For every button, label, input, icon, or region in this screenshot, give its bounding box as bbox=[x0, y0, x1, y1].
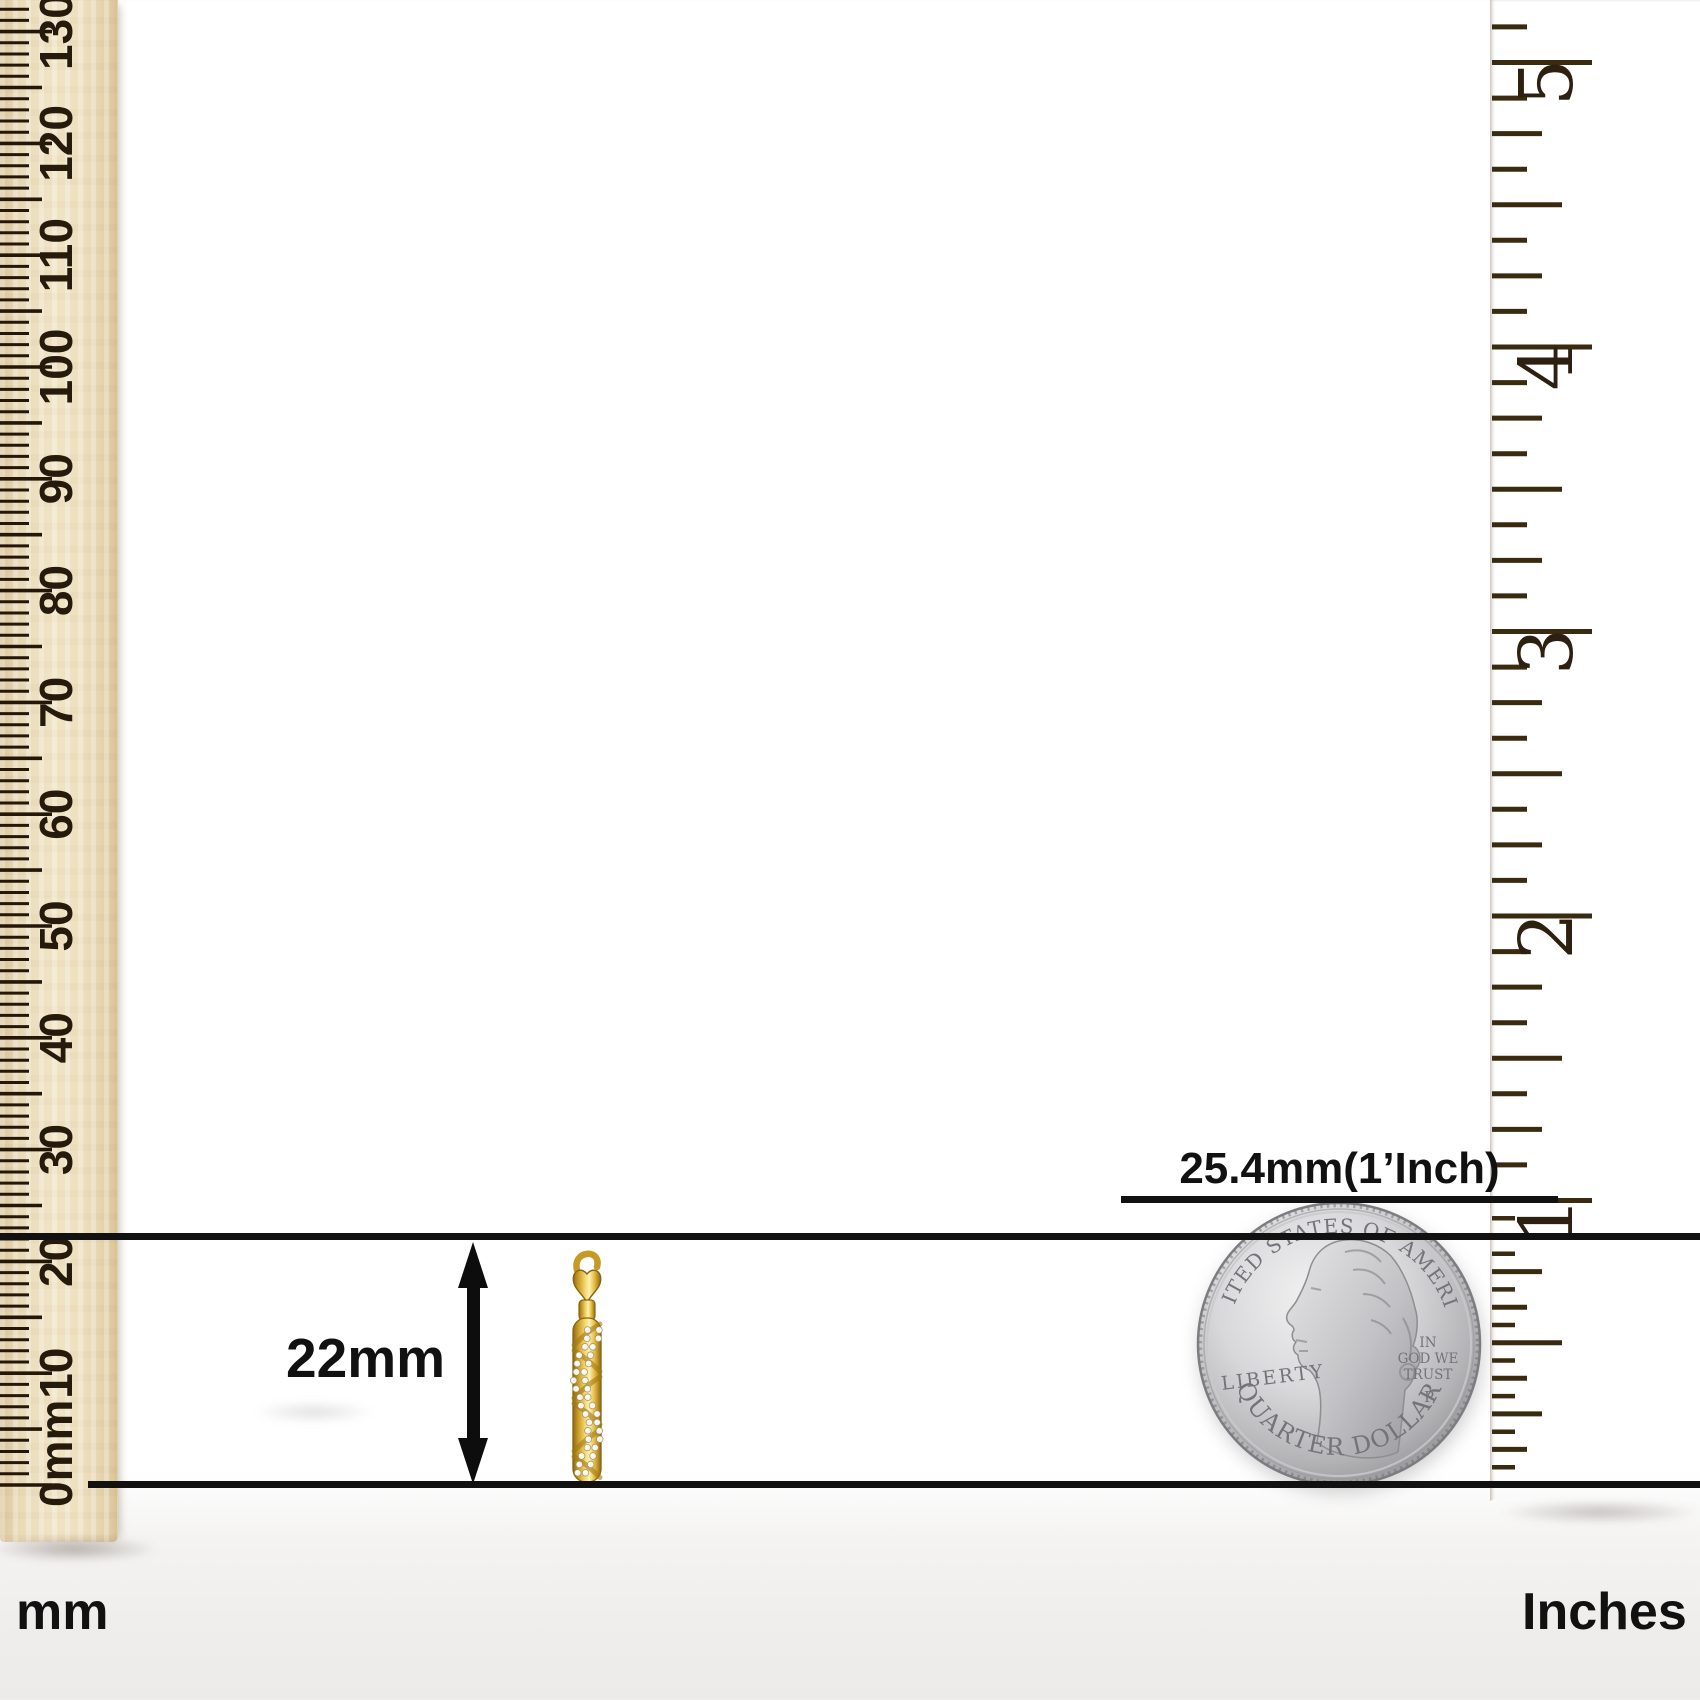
mm-ruler-number: 70 bbox=[30, 677, 82, 728]
mm-ruler-number: 130 bbox=[30, 0, 82, 70]
inch-ruler-number: 4 bbox=[1504, 343, 1590, 390]
mm-ruler-number: 110 bbox=[30, 218, 82, 292]
mm-ruler-shadow bbox=[0, 1536, 162, 1562]
inches-unit-label: Inches bbox=[1522, 1582, 1687, 1642]
top-measurement-line bbox=[0, 1233, 1700, 1240]
svg-text:TRUST: TRUST bbox=[1404, 1367, 1453, 1383]
inch-ruler-number: 3 bbox=[1504, 628, 1590, 675]
coin-mint-mark: P bbox=[1424, 1388, 1434, 1406]
mm-ruler-scale: 0mm102030405060708090100110120130 bbox=[0, 0, 118, 1542]
mm-ruler-number: 50 bbox=[30, 900, 82, 951]
earring-clasp bbox=[573, 1270, 600, 1303]
mm-ruler-number: 20 bbox=[30, 1236, 82, 1287]
quarter-coin: UNITED STATES OF AMERICA QUARTER DOLLAR … bbox=[1195, 1200, 1483, 1488]
mm-ruler-number: 30 bbox=[30, 1124, 82, 1175]
mm-ruler: 0mm102030405060708090100110120130 bbox=[0, 0, 118, 1542]
mm-ruler-number: 10 bbox=[30, 1348, 82, 1399]
mm-ruler-number: 120 bbox=[30, 105, 82, 182]
inch-ruler-scale: 12345 bbox=[1490, 0, 1700, 1507]
arrow-shaft bbox=[467, 1284, 480, 1442]
inch-ruler: 12345 bbox=[1490, 0, 1700, 1507]
inch-ruler-shadow bbox=[1494, 1500, 1700, 1524]
arrow-head-up bbox=[458, 1242, 488, 1288]
inch-ruler-number: 5 bbox=[1504, 59, 1590, 106]
mm-unit-label: mm bbox=[16, 1582, 108, 1642]
mm-ruler-number: 100 bbox=[30, 329, 82, 406]
earring-hook bbox=[576, 1254, 597, 1270]
earring-shadow bbox=[248, 1400, 380, 1424]
mm-ruler-number: 90 bbox=[30, 453, 82, 504]
svg-text:GOD WE: GOD WE bbox=[1398, 1351, 1459, 1367]
inch-ruler-number: 2 bbox=[1504, 912, 1590, 959]
inch-ticks bbox=[1492, 27, 1592, 1485]
mm-ruler-number: 80 bbox=[30, 565, 82, 616]
earring bbox=[556, 1240, 618, 1488]
mm-ruler-number: 60 bbox=[30, 789, 82, 840]
earring-hinge bbox=[579, 1300, 595, 1320]
svg-text:IN: IN bbox=[1419, 1335, 1436, 1351]
inch-reference-underline bbox=[1121, 1196, 1558, 1203]
mm-ruler-number: 0mm bbox=[30, 1400, 82, 1507]
mm-ruler-number: 40 bbox=[30, 1012, 82, 1063]
jewelry-size-chart: 0mm102030405060708090100110120130 12345 bbox=[0, 0, 1700, 1700]
dimension-label: 22mm bbox=[228, 1326, 445, 1390]
arrow-head-down bbox=[458, 1438, 488, 1484]
bottom-measurement-line bbox=[88, 1481, 1700, 1488]
dimension-arrow bbox=[450, 1240, 496, 1486]
coin-size-label: 25.4mm(1’Inch) bbox=[1121, 1144, 1558, 1194]
